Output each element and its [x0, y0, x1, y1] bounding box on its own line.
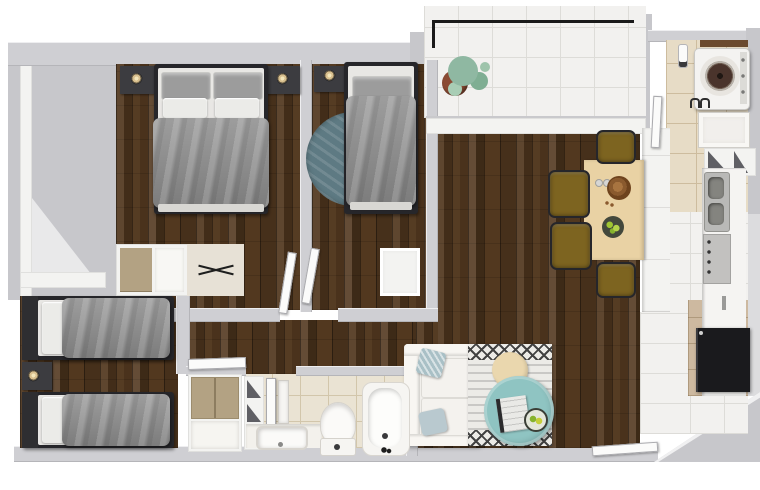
towel: [278, 380, 289, 424]
dining-chair-top: [596, 130, 636, 164]
floor-plan-render: [0, 0, 760, 490]
crumbs: [604, 200, 616, 209]
pillow: [215, 98, 259, 118]
toilet-flush-button: [334, 444, 340, 450]
x-decor-icon: [198, 262, 234, 278]
pillow: [161, 72, 211, 100]
bathtub: [362, 382, 410, 456]
dining-chair-bottom: [596, 262, 636, 298]
cabinet-handle: [722, 296, 726, 310]
bathtub-faucet-icon: [380, 446, 392, 455]
bedroom-single-cabinet: [380, 248, 420, 296]
sink-basin: [708, 177, 724, 199]
fruit-bowl-coffee-table: [524, 408, 548, 432]
door-stop-fixture: [678, 44, 688, 68]
wardrobe-tan-doors: [191, 377, 239, 419]
bathroom-door-leaf: [266, 378, 276, 430]
twin-bed-upper-headboard: [22, 296, 38, 360]
exterior-left-wall-strip: [20, 42, 32, 300]
desk-knob: [699, 331, 703, 335]
pillow: [42, 302, 64, 354]
dining-table: [584, 160, 644, 260]
fruit-bowl-green: [602, 216, 624, 238]
balcony-railing: [432, 20, 634, 23]
double-bed-duvet: [153, 118, 269, 208]
balcony-railing-end: [432, 20, 435, 48]
kitchen-cabinet-run: [642, 128, 670, 312]
dining-chair-left-2: [550, 222, 592, 270]
dresser-shelf-white: [155, 248, 184, 292]
washing-machine-drum: [700, 56, 740, 96]
hook: [690, 98, 700, 108]
cooktop-oven: [703, 234, 731, 284]
double-bed-foot: [158, 204, 264, 212]
bread-bowl: [607, 176, 631, 200]
sink-basin: [708, 203, 724, 225]
laundry-sink: [698, 112, 750, 148]
laundry-counter-edge: [700, 40, 748, 47]
single-bed-duvet: [346, 96, 416, 206]
washing-machine-panel: [740, 52, 747, 104]
drinking-glass: [595, 179, 603, 187]
wall-hooks-icon: [690, 98, 708, 108]
black-desk: [696, 328, 750, 392]
wall-bedrooms-bottom-right: [338, 308, 438, 322]
table-lamp-icon: [324, 70, 336, 82]
table-lamp-icon: [28, 370, 40, 382]
pillow: [42, 397, 64, 443]
twin-bed-lower-headboard: [22, 392, 38, 448]
kitchen-sink-stainless: [704, 172, 730, 232]
hook: [700, 98, 710, 108]
twin-bed-lower-duvet: [62, 394, 170, 446]
pillow: [213, 72, 263, 100]
potted-plant-icon: [448, 56, 478, 86]
bathtub-drain: [382, 433, 388, 439]
wall-bed2-living: [426, 60, 438, 312]
pillow: [163, 98, 207, 118]
twin-window-sill: [20, 272, 106, 288]
table-lamp-icon: [131, 73, 143, 85]
wardrobe-lower-shelf: [191, 421, 239, 449]
single-bed-foot: [350, 202, 412, 210]
kitchen-floor-left: [640, 312, 668, 434]
wall-bathroom-top-right: [296, 366, 412, 376]
bathtub-inner: [368, 388, 402, 448]
dining-chair-left-1: [548, 170, 590, 218]
dresser-shelf-tan: [120, 248, 152, 292]
table-lamp-icon: [277, 73, 289, 85]
faucet-dot: [278, 442, 283, 447]
twin-bed-upper-duvet: [62, 298, 170, 358]
twin-bedroom-door-leaf: [188, 357, 246, 370]
